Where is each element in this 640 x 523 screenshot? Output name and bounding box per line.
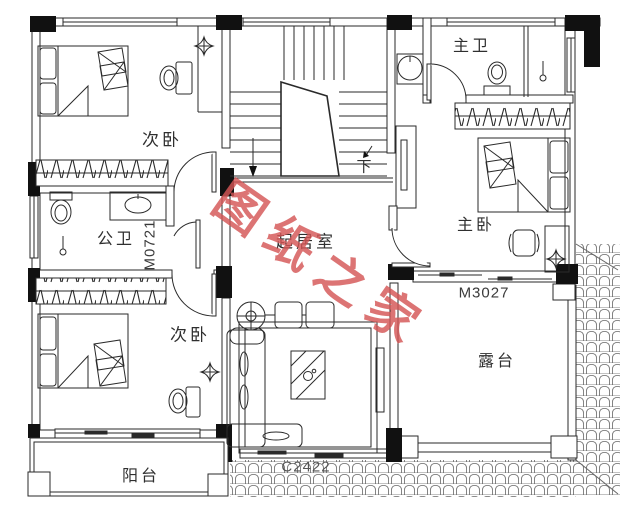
- lamp-icon: [201, 363, 219, 381]
- armchair-1: [275, 302, 302, 328]
- desk-chair-bottom-left: [169, 387, 200, 417]
- door-bedroom-bottom-left: [172, 274, 216, 316]
- window-top-right: [447, 18, 555, 26]
- window-top-left: [63, 18, 177, 26]
- coffee-table: [291, 351, 325, 399]
- room-label-balcony: 阳台: [122, 469, 160, 485]
- bed-bottom-left: [38, 314, 128, 388]
- bed-master: [478, 138, 570, 212]
- room-label-master-bedroom: 主卧: [457, 218, 495, 234]
- window-balcony: [55, 429, 200, 438]
- room-label-bedroom-bottom-left: 次卧: [170, 327, 210, 344]
- bed-top-left: [38, 46, 128, 116]
- window-top-stairs: [243, 18, 330, 26]
- shower-head-icon: [60, 236, 66, 255]
- door-public-bath-m0721: [174, 220, 200, 268]
- wardrobe-bedroom-bottom-left: [36, 278, 166, 304]
- window-label-c2422: C2422: [281, 460, 330, 475]
- room-label-bedroom-top-left: 次卧: [142, 132, 182, 149]
- wardrobe-master-bedroom: [455, 103, 570, 129]
- shower-head-master-icon: [540, 61, 546, 81]
- desk-chair-top-left: [160, 62, 192, 94]
- door-master-bedroom: [392, 228, 430, 267]
- floorplan-page: 次卧 公卫 M0721 次卧 阳台 起居室 主卫 主卧 M3027 露台 下 C…: [0, 0, 640, 523]
- door-master-bath: [427, 64, 466, 100]
- side-table-lamp: [237, 302, 265, 330]
- balcony-railing: [28, 438, 228, 496]
- door-label-m3027: M3027: [459, 286, 510, 301]
- door-label-m0721: M0721: [143, 220, 158, 271]
- stairs-down-label: 下: [356, 160, 371, 175]
- room-label-terrace: 露台: [478, 354, 516, 370]
- staircase: [230, 26, 387, 177]
- sliding-door-m3027: [413, 271, 557, 282]
- window-master-east: [567, 38, 575, 92]
- door-bedroom-top-left: [174, 152, 216, 192]
- room-label-public-bath: 公卫: [97, 232, 135, 248]
- window-bath-left: [30, 196, 38, 258]
- room-label-master-bath: 主卫: [453, 39, 491, 55]
- wardrobe-bedroom-top-left: [36, 160, 168, 186]
